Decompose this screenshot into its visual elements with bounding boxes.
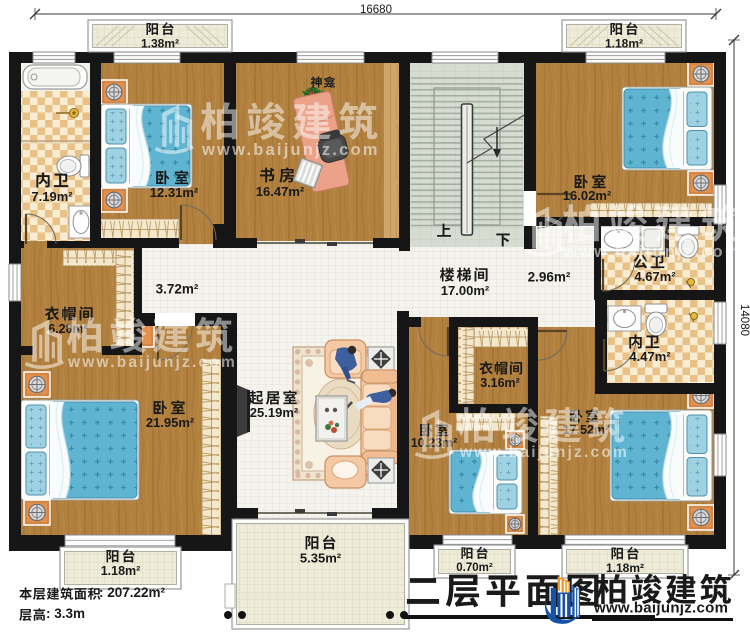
svg-text:www.baijunjz.com: www.baijunjz.com <box>593 600 728 617</box>
svg-text:3.72m²: 3.72m² <box>156 282 199 297</box>
svg-text:1.38m²: 1.38m² <box>141 36 179 50</box>
svg-text:12.31m²: 12.31m² <box>150 185 199 200</box>
svg-text:: 3.3m: : 3.3m <box>46 606 85 621</box>
svg-text:www.baijunjz.com: www.baijunjz.com <box>563 243 742 261</box>
svg-text:www.baijunjz.com: www.baijunjz.com <box>67 354 237 371</box>
svg-text:www.baijunjz.com: www.baijunjz.com <box>459 444 629 461</box>
svg-text:14080: 14080 <box>738 304 750 336</box>
svg-text:4.47m²: 4.47m² <box>629 349 671 364</box>
svg-text:16.47m²: 16.47m² <box>256 184 305 199</box>
svg-text:3.16m²: 3.16m² <box>480 376 520 390</box>
svg-text:4.67m²: 4.67m² <box>634 269 676 284</box>
svg-text:1.18m²: 1.18m² <box>101 564 141 578</box>
svg-text:17.00m²: 17.00m² <box>441 283 490 298</box>
svg-text:16680: 16680 <box>360 4 392 16</box>
svg-text:25.19m²: 25.19m² <box>250 405 299 420</box>
svg-text:1.18m²: 1.18m² <box>605 36 643 50</box>
svg-text:21.95m²: 21.95m² <box>146 415 195 430</box>
svg-text:1.18m²: 1.18m² <box>606 561 644 575</box>
svg-text:16.02m²: 16.02m² <box>563 188 612 203</box>
svg-text:7.19m²: 7.19m² <box>31 189 73 204</box>
svg-text:www.baijunjz.com: www.baijunjz.com <box>201 141 380 159</box>
svg-text:: 207.22m²: : 207.22m² <box>99 585 166 600</box>
svg-text:2.96m²: 2.96m² <box>528 270 571 285</box>
svg-text:5.35m²: 5.35m² <box>300 551 342 566</box>
svg-text:0.70m²: 0.70m² <box>456 562 493 574</box>
